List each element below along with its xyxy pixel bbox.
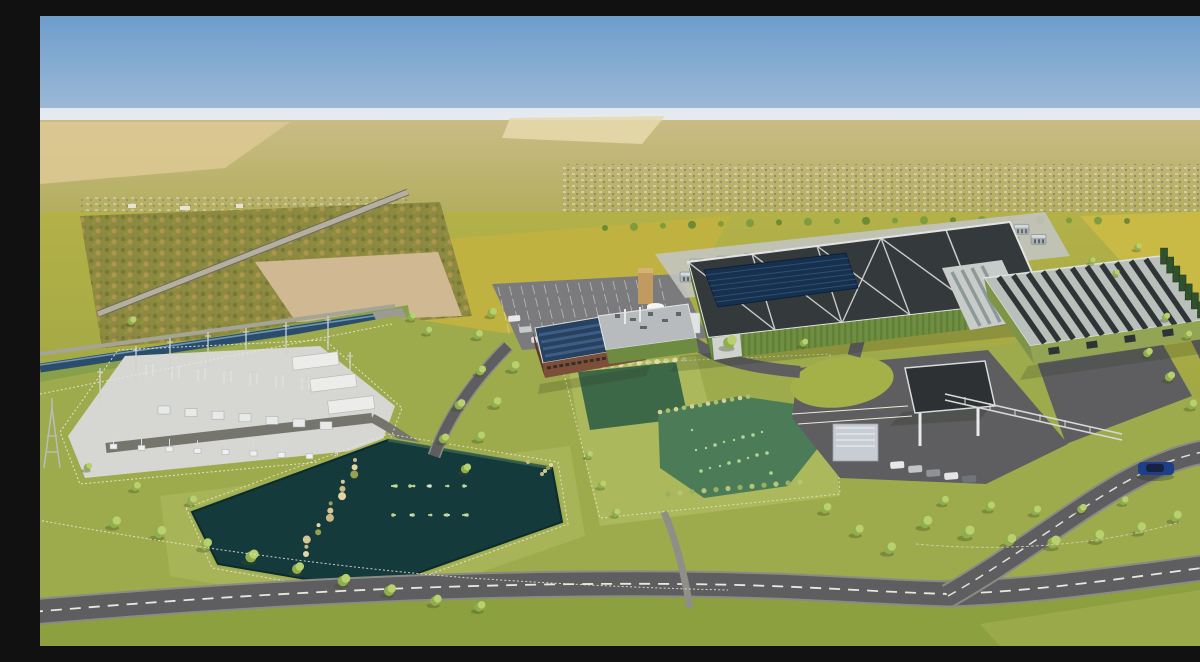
reed-clump [304, 545, 308, 549]
hedge-tree [1066, 217, 1072, 223]
fringe-reed [682, 406, 687, 411]
car-glass [1146, 464, 1164, 472]
rendering-canvas [40, 16, 1200, 646]
algae-speck [761, 431, 763, 433]
parked-car [908, 465, 922, 473]
reed-clump [303, 551, 309, 557]
switch-stand [166, 447, 173, 452]
lily-speck [413, 485, 416, 488]
fringe-reed [677, 490, 682, 495]
reed-clump [317, 523, 321, 527]
cooling-unit [1031, 234, 1046, 244]
fringe-reed [658, 410, 663, 415]
fringe-reed [749, 484, 754, 489]
algae-speck [755, 453, 759, 457]
switch-stand [278, 452, 285, 457]
hedge-tree [688, 221, 696, 229]
lily-speck [447, 485, 450, 488]
algae-speck [769, 471, 773, 475]
fringe-reed [689, 489, 694, 494]
reed-clump [540, 472, 544, 476]
parked-car [926, 469, 940, 477]
transformer [185, 409, 197, 417]
scene-svg [40, 16, 1200, 646]
fringe-reed [674, 407, 679, 412]
hedge-tree [718, 221, 724, 227]
tan-tower [638, 268, 653, 304]
fringe-reed [738, 396, 743, 401]
hedge-tree [1094, 217, 1102, 225]
lily-speck [428, 484, 432, 488]
fringe-reed [797, 479, 802, 484]
reed-clump [352, 464, 358, 470]
parked-car [508, 315, 520, 322]
hedge-tree [892, 218, 898, 224]
transformer [293, 419, 305, 427]
algae-speck [727, 461, 731, 465]
fringe-reed [701, 488, 706, 493]
tan-tower-top [638, 268, 653, 273]
hedge-tree [1124, 218, 1130, 224]
parked-car [519, 326, 531, 333]
hedge-tree [746, 219, 754, 227]
algae-speck [695, 449, 697, 451]
lily-speck [465, 513, 469, 517]
algae-speck [747, 457, 749, 459]
reed-clump [543, 469, 547, 473]
transformer [158, 406, 170, 414]
gatehouse-building [833, 424, 878, 461]
hedge-tree [862, 217, 870, 225]
hedge-tree [602, 225, 608, 231]
fringe-reed [746, 394, 751, 399]
parked-car [944, 472, 958, 480]
hedge-tree [776, 219, 782, 225]
fringe-reed [713, 487, 718, 492]
fringe-reed [714, 400, 719, 405]
hedge-tree [630, 223, 638, 231]
reed-clump [353, 458, 357, 462]
gate-canopy [905, 361, 995, 413]
algae-speck [723, 441, 725, 443]
lily-speck [448, 514, 450, 516]
fringe-reed [698, 403, 703, 408]
reed-clump [350, 470, 358, 478]
algae-speck [737, 459, 741, 463]
transformer [212, 411, 224, 419]
reed-clump [326, 514, 334, 522]
switch-stand [110, 444, 117, 449]
reed-clump [303, 536, 311, 544]
lily-speck [394, 514, 396, 516]
reed-clump [338, 492, 346, 500]
algae-speck [765, 451, 769, 455]
reed-clump [549, 463, 553, 467]
reed-clump [526, 460, 530, 464]
algae-speck [705, 447, 707, 449]
algae-speck [741, 435, 745, 439]
switch-stand [306, 454, 313, 459]
fringe-reed [665, 491, 670, 496]
fringe-reed [761, 483, 766, 488]
switch-stand [250, 451, 257, 456]
cooling-unit [1014, 224, 1029, 234]
switch-stand [138, 445, 145, 450]
parked-car [890, 461, 904, 469]
fringe-reed [666, 408, 671, 413]
hedge-tree [804, 218, 812, 226]
transformer [239, 414, 251, 422]
fringe-reed [706, 401, 711, 406]
switch-stand [222, 450, 229, 455]
algae-speck [691, 429, 693, 431]
hedge-tree [920, 216, 928, 224]
fringe-reed [690, 404, 695, 409]
reed-clump [327, 508, 333, 514]
fringe-reed [730, 397, 735, 402]
fringe-reed [785, 480, 790, 485]
reed-clump [329, 501, 333, 505]
reed-clump [339, 486, 345, 492]
hedge-tree [660, 223, 666, 229]
algae-speck [719, 465, 721, 467]
parked-car [962, 475, 976, 483]
algae-speck [733, 439, 735, 441]
algae-speck [699, 469, 703, 473]
transformer [266, 416, 278, 424]
transformer [320, 422, 332, 430]
hedge-tree [834, 218, 840, 224]
fringe-reed [722, 399, 727, 404]
algae-speck [709, 467, 711, 469]
reed-clump [546, 466, 550, 470]
algae-speck [751, 433, 755, 437]
reed-clump [341, 480, 345, 484]
blue-car [1136, 462, 1174, 481]
lily-speck [394, 484, 398, 488]
switch-stand [194, 448, 201, 453]
algae-speck [713, 443, 717, 447]
lily-speck [411, 513, 415, 517]
fringe-reed [725, 486, 730, 491]
reed-clump [315, 529, 321, 535]
lily-speck [430, 514, 433, 517]
fringe-reed [737, 485, 742, 490]
lily-speck [465, 485, 467, 487]
fringe-reed [773, 482, 778, 487]
